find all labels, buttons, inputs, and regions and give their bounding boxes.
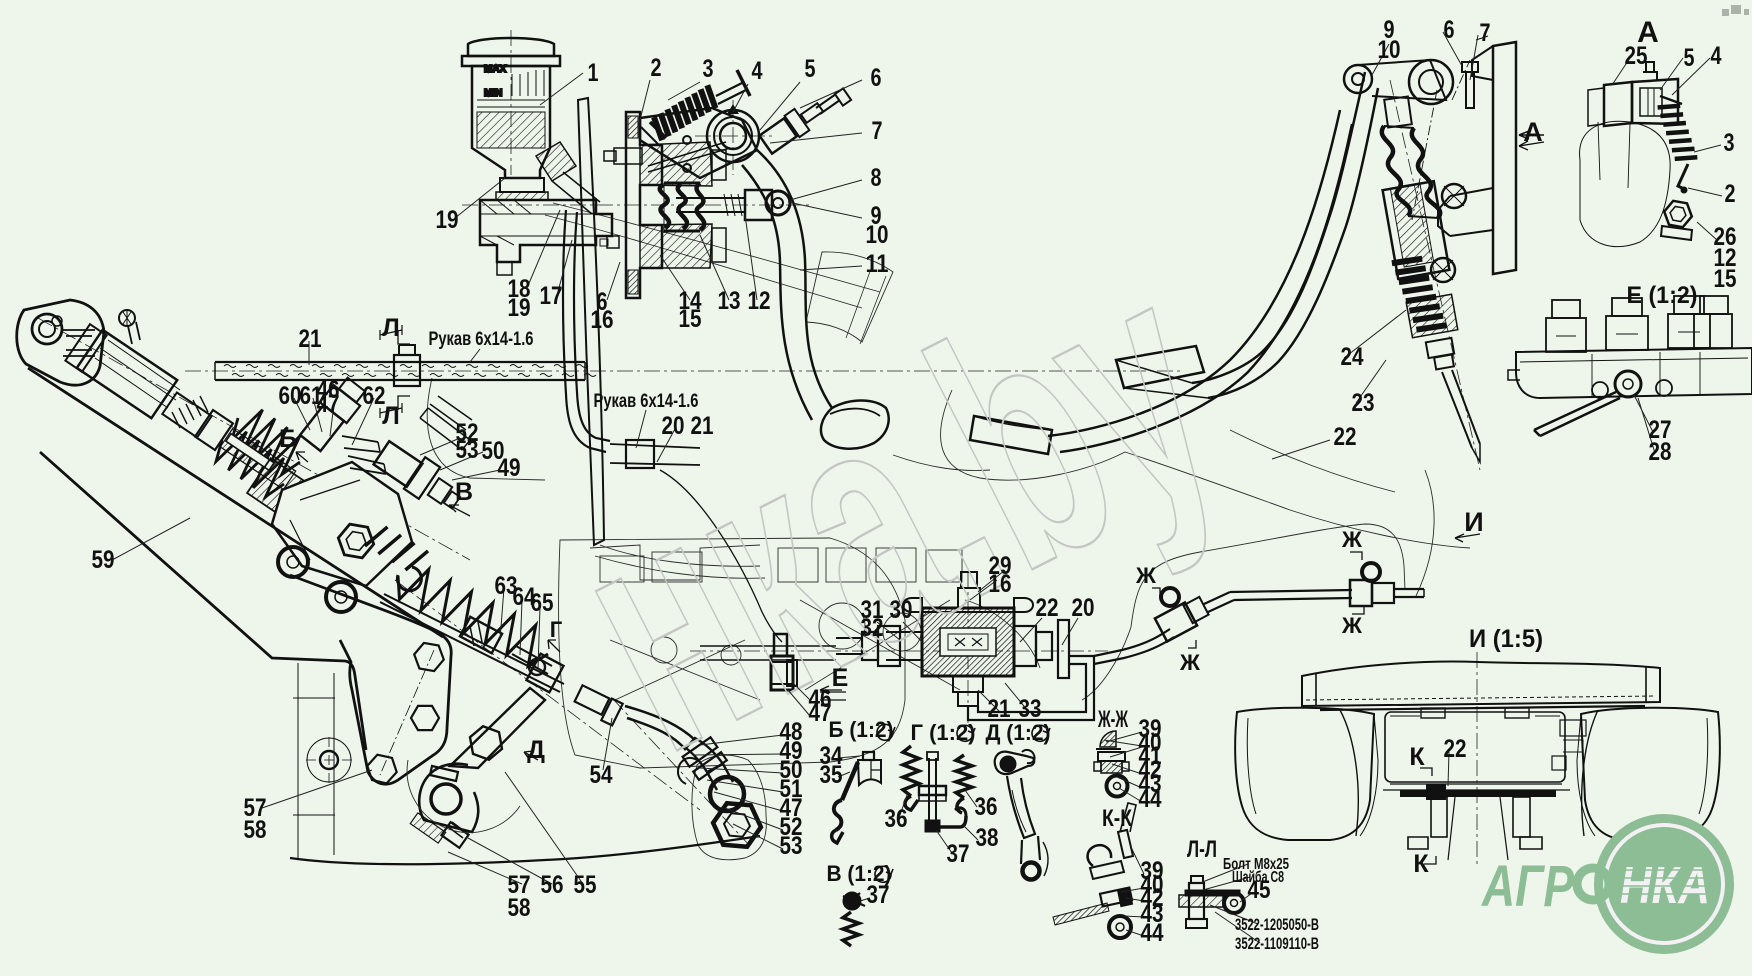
svg-text:А: А [1523, 117, 1543, 147]
svg-text:Ж: Ж [1135, 563, 1156, 588]
svg-text:19: 19 [508, 294, 531, 322]
svg-text:21: 21 [988, 695, 1011, 723]
svg-text:22: 22 [1036, 594, 1059, 622]
svg-text:MAX: MAX [484, 64, 507, 75]
svg-text:59: 59 [92, 546, 115, 574]
svg-text:Б (1:2): Б (1:2) [829, 717, 894, 742]
svg-text:19: 19 [436, 206, 459, 234]
svg-text:К: К [1413, 850, 1429, 878]
svg-text:38: 38 [976, 824, 999, 852]
svg-text:13: 13 [718, 287, 741, 315]
svg-text:3: 3 [703, 55, 714, 83]
svg-text:21: 21 [299, 325, 322, 353]
svg-text:15: 15 [679, 305, 702, 333]
svg-text:Д (1:2): Д (1:2) [986, 720, 1051, 745]
svg-text:Рукав 6х14-1.6: Рукав 6х14-1.6 [594, 391, 699, 412]
svg-text:Ж: Ж [1341, 527, 1362, 552]
svg-text:2: 2 [651, 54, 662, 82]
svg-text:И (1:5): И (1:5) [1469, 625, 1543, 653]
svg-text:12: 12 [748, 287, 771, 315]
svg-text:36: 36 [975, 793, 998, 821]
svg-text:5: 5 [805, 55, 816, 83]
svg-text:36: 36 [885, 805, 908, 833]
svg-text:Л-Л: Л-Л [1187, 836, 1217, 863]
svg-text:Шайба С8: Шайба С8 [1232, 869, 1284, 886]
svg-text:33: 33 [1019, 695, 1042, 723]
svg-text:Л: Л [382, 402, 400, 430]
svg-text:В: В [455, 478, 473, 506]
svg-text:20: 20 [1072, 594, 1095, 622]
svg-text:22: 22 [1334, 423, 1357, 451]
svg-text:4: 4 [752, 57, 763, 85]
svg-text:3: 3 [1724, 129, 1735, 157]
svg-text:10: 10 [1378, 36, 1401, 64]
svg-text:3522-1109110-В: 3522-1109110-В [1235, 934, 1319, 953]
svg-text:60: 60 [279, 382, 302, 410]
svg-text:32: 32 [861, 614, 884, 642]
svg-text:2: 2 [1725, 180, 1736, 208]
svg-text:53: 53 [780, 832, 803, 860]
svg-text:44: 44 [1141, 919, 1164, 947]
svg-text:В (1:2): В (1:2) [827, 861, 892, 886]
svg-text:35: 35 [820, 761, 843, 789]
svg-text:Е: Е [832, 664, 849, 692]
svg-text:6: 6 [871, 64, 882, 92]
svg-text:47: 47 [317, 390, 340, 418]
svg-text:30: 30 [890, 596, 913, 624]
svg-text:58: 58 [508, 894, 531, 922]
svg-text:17: 17 [540, 282, 563, 310]
svg-text:Д: Д [527, 736, 545, 764]
svg-text:Ж: Ж [1341, 613, 1362, 638]
svg-text:6: 6 [1444, 16, 1455, 44]
svg-text:Ж-Ж: Ж-Ж [1097, 706, 1128, 733]
svg-text:65: 65 [531, 589, 554, 617]
svg-text:55: 55 [574, 871, 597, 899]
svg-text:16: 16 [591, 306, 614, 334]
svg-text:49: 49 [498, 454, 521, 482]
svg-text:58: 58 [244, 816, 267, 844]
svg-text:3522-1205050-В: 3522-1205050-В [1235, 915, 1319, 934]
svg-text:7: 7 [1480, 19, 1491, 47]
svg-text:А: А [1637, 16, 1659, 49]
svg-text:К-К: К-К [1102, 805, 1132, 832]
svg-text:37: 37 [947, 840, 970, 868]
svg-text:20: 20 [662, 412, 685, 440]
svg-text:Г (1:2): Г (1:2) [911, 720, 976, 745]
svg-text:И: И [1464, 507, 1483, 537]
svg-text:Рукав 6х14-1.6: Рукав 6х14-1.6 [429, 329, 534, 350]
svg-text:Ж: Ж [1179, 650, 1200, 675]
svg-text:5: 5 [1684, 44, 1695, 72]
svg-text:Г: Г [550, 617, 563, 642]
svg-text:1: 1 [588, 59, 599, 87]
svg-text:24: 24 [1341, 343, 1364, 371]
svg-text:11: 11 [866, 250, 889, 278]
svg-text:8: 8 [871, 164, 882, 192]
svg-text:22: 22 [1444, 735, 1467, 763]
svg-text:10: 10 [866, 221, 889, 249]
svg-text:16: 16 [989, 570, 1012, 598]
svg-text:21: 21 [691, 412, 714, 440]
svg-text:44: 44 [1139, 785, 1162, 813]
svg-text:MIN: MIN [484, 88, 502, 99]
svg-text:54: 54 [590, 761, 613, 789]
svg-text:Е (1:2): Е (1:2) [1627, 282, 1698, 309]
svg-text:Л: Л [382, 314, 400, 342]
svg-text:23: 23 [1352, 389, 1375, 417]
svg-text:АГР: АГР [1480, 854, 1574, 919]
svg-text:К: К [1409, 743, 1425, 771]
svg-text:15: 15 [1714, 265, 1737, 293]
svg-text:4: 4 [1711, 42, 1722, 70]
svg-text:28: 28 [1649, 438, 1672, 466]
svg-text:Б: Б [279, 425, 297, 453]
svg-text:7: 7 [872, 117, 883, 145]
svg-text:56: 56 [541, 871, 564, 899]
svg-text:53: 53 [456, 436, 479, 464]
